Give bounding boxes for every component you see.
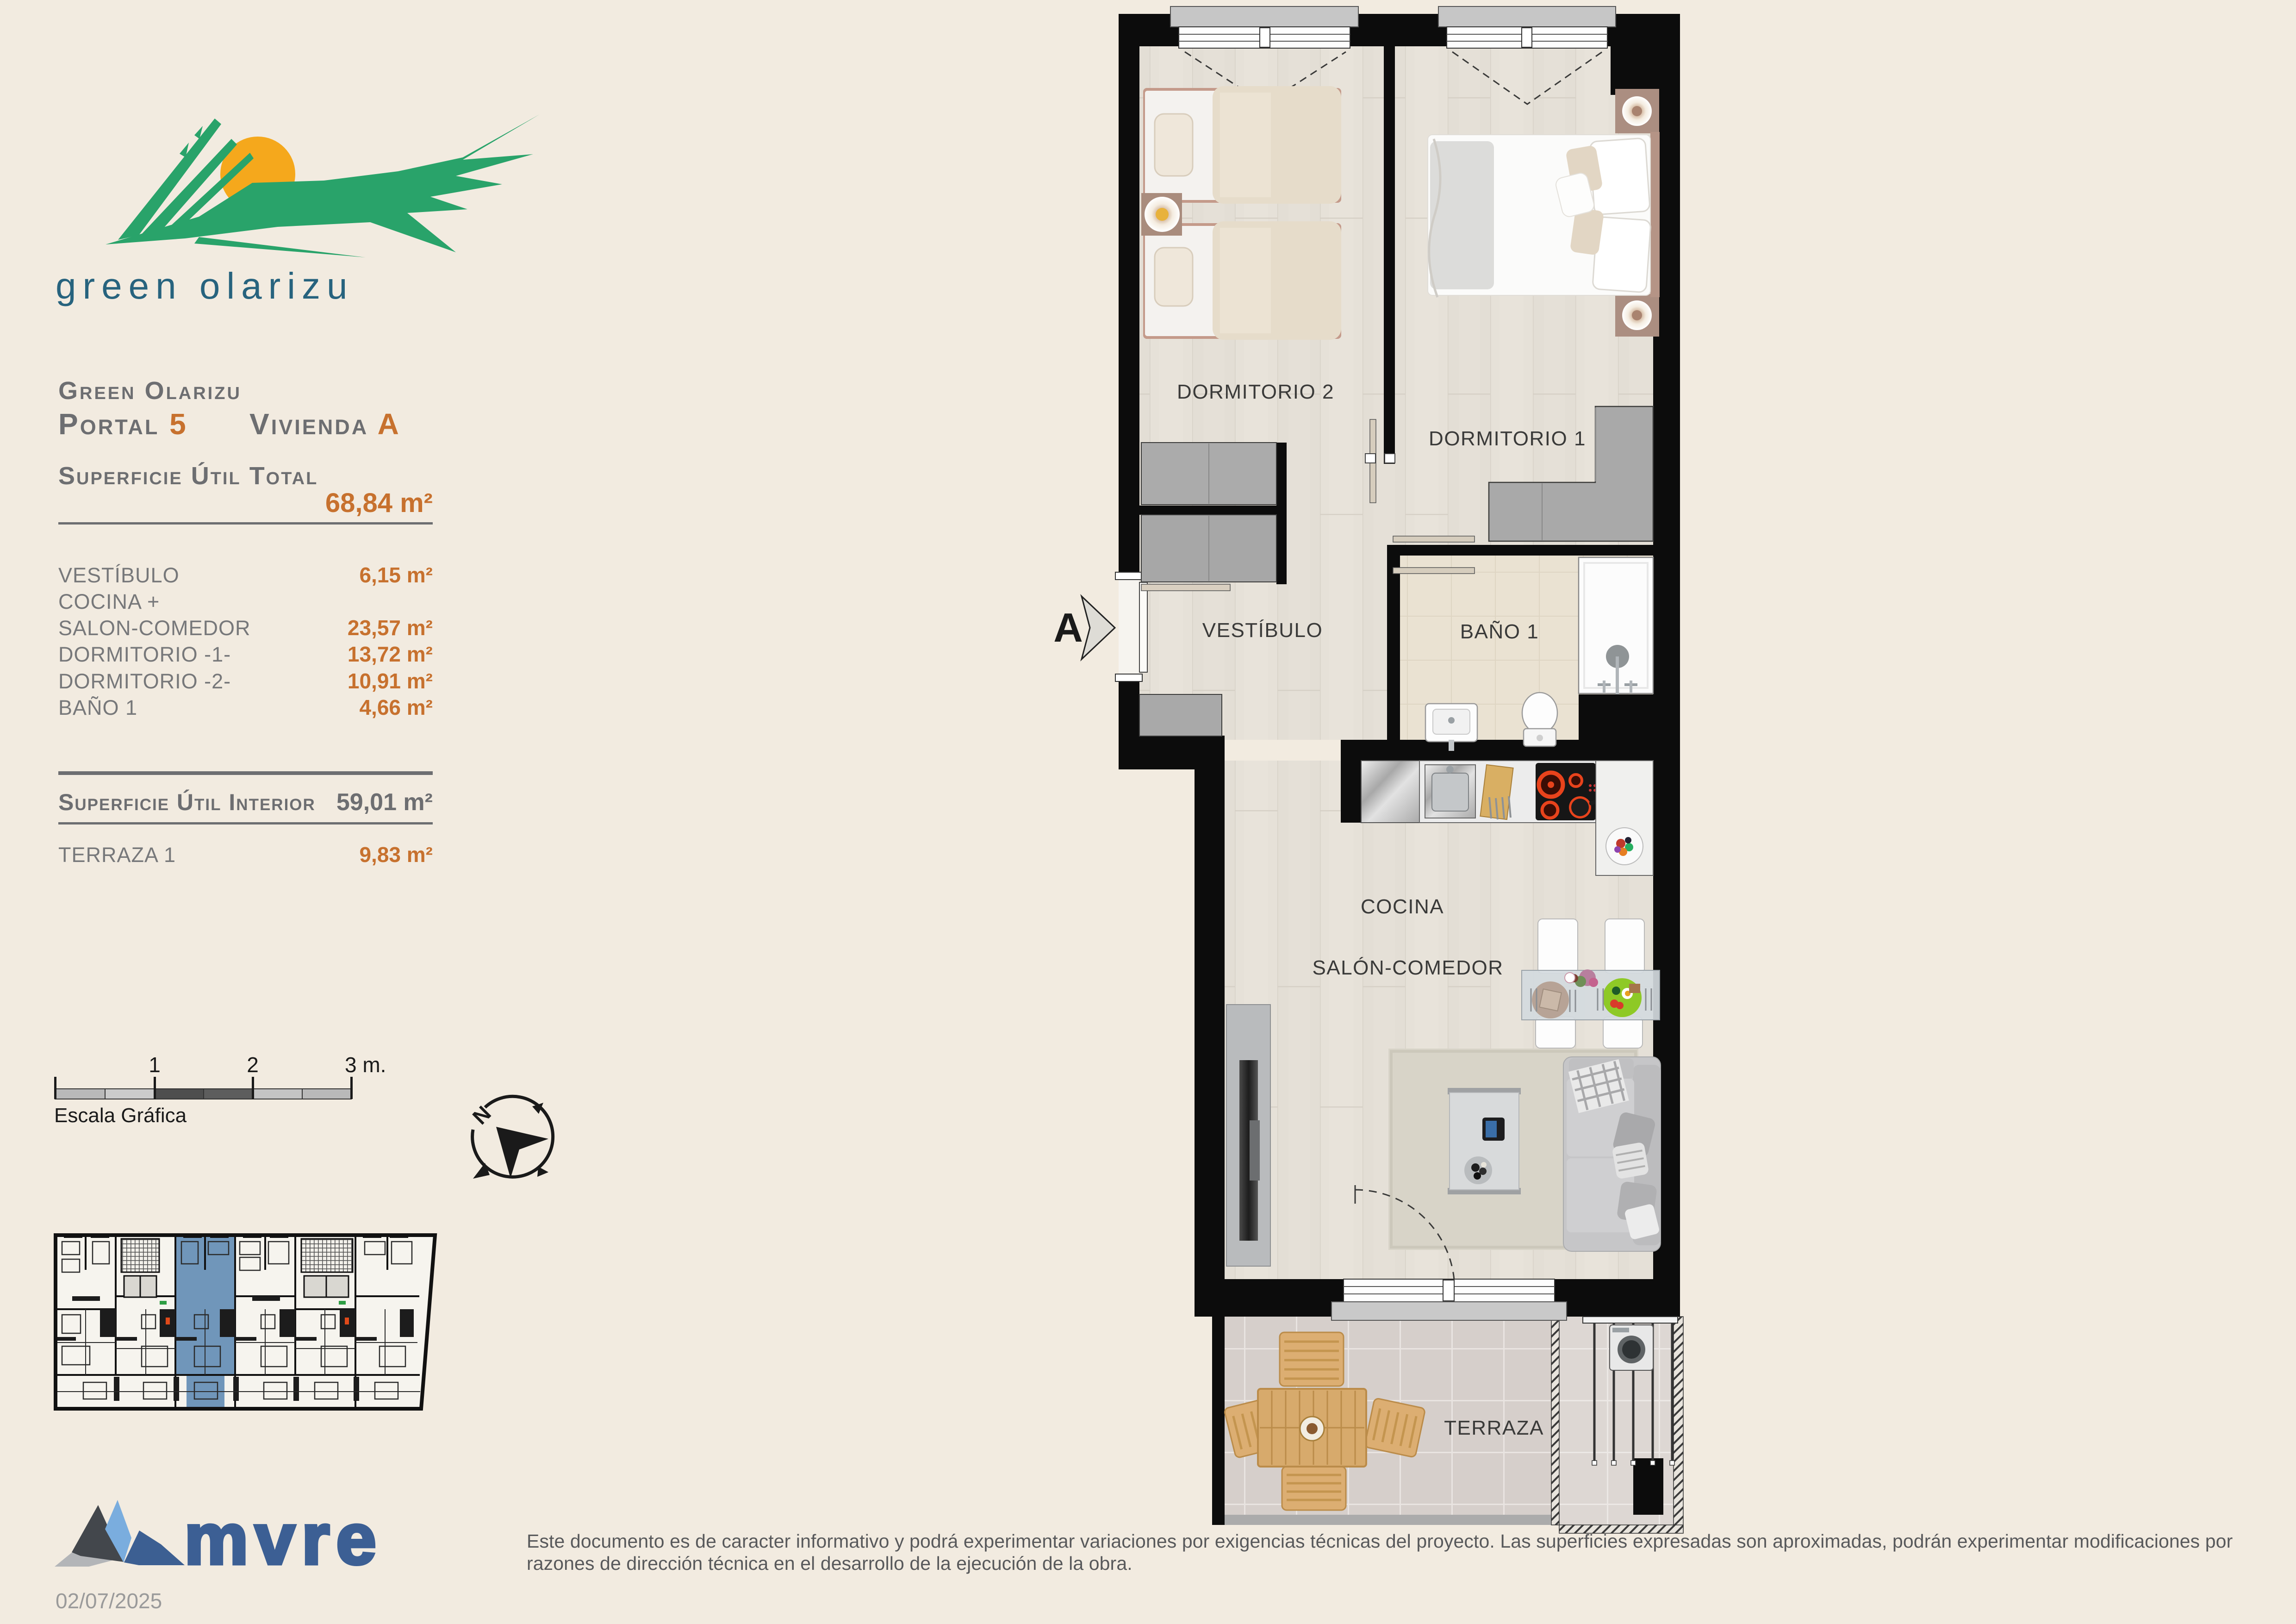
- svg-text:SALON-COMEDOR: SALON-COMEDOR: [58, 616, 251, 640]
- svg-text:TERRAZA: TERRAZA: [1444, 1417, 1544, 1439]
- svg-text:mvre: mvre: [184, 1499, 383, 1580]
- svg-text:DORMITORIO -1-: DORMITORIO -1-: [58, 643, 231, 666]
- svg-text:VESTÍBULO: VESTÍBULO: [1202, 619, 1323, 642]
- svg-text:N: N: [468, 1101, 496, 1129]
- svg-text:COCINA: COCINA: [1361, 895, 1444, 918]
- svg-text:10,91 m²: 10,91 m²: [348, 669, 433, 693]
- svg-text:DORMITORIO 2: DORMITORIO 2: [1177, 381, 1334, 403]
- svg-text:DORMITORIO -2-: DORMITORIO -2-: [58, 669, 231, 693]
- svg-text:Green Olarizu: Green Olarizu: [58, 377, 242, 405]
- svg-text:Portal 5: Portal 5: [58, 407, 188, 441]
- svg-text:Superficie Útil Interior: Superficie Útil Interior: [58, 789, 316, 815]
- svg-text:68,84 m²: 68,84 m²: [325, 488, 433, 518]
- svg-text:A: A: [1053, 605, 1083, 650]
- svg-text:COCINA +: COCINA +: [58, 590, 160, 613]
- svg-text:BAÑO 1: BAÑO 1: [1460, 620, 1539, 643]
- svg-text:3 m.: 3 m.: [345, 1053, 386, 1077]
- svg-text:1: 1: [149, 1053, 161, 1077]
- svg-text:23,57 m²: 23,57 m²: [348, 616, 433, 640]
- svg-text:VESTÍBULO: VESTÍBULO: [58, 563, 180, 587]
- svg-text:DORMITORIO 1: DORMITORIO 1: [1429, 427, 1586, 450]
- svg-text:razones de dirección técnica e: razones de dirección técnica en el desar…: [527, 1553, 1132, 1574]
- svg-text:4,66 m²: 4,66 m²: [359, 695, 433, 719]
- svg-text:Escala Gráfica: Escala Gráfica: [54, 1104, 187, 1127]
- svg-text:Superficie Útil Total: Superficie Útil Total: [58, 462, 318, 490]
- svg-text:6,15 m²: 6,15 m²: [359, 563, 433, 587]
- svg-text:02/07/2025: 02/07/2025: [56, 1589, 162, 1613]
- svg-text:2: 2: [247, 1053, 259, 1077]
- svg-text:59,01 m²: 59,01 m²: [336, 789, 433, 816]
- svg-text:13,72 m²: 13,72 m²: [348, 642, 433, 666]
- svg-text:BAÑO 1: BAÑO 1: [58, 696, 137, 719]
- svg-text:TERRAZA 1: TERRAZA 1: [58, 843, 176, 867]
- svg-text:green olarizu: green olarizu: [56, 265, 354, 306]
- svg-text:9,83 m²: 9,83 m²: [359, 843, 433, 867]
- svg-text:Vivienda A: Vivienda A: [249, 407, 401, 441]
- svg-text:SALÓN-COMEDOR: SALÓN-COMEDOR: [1312, 956, 1503, 979]
- svg-text:Este documento es de caracter: Este documento es de caracter informativ…: [527, 1530, 2233, 1552]
